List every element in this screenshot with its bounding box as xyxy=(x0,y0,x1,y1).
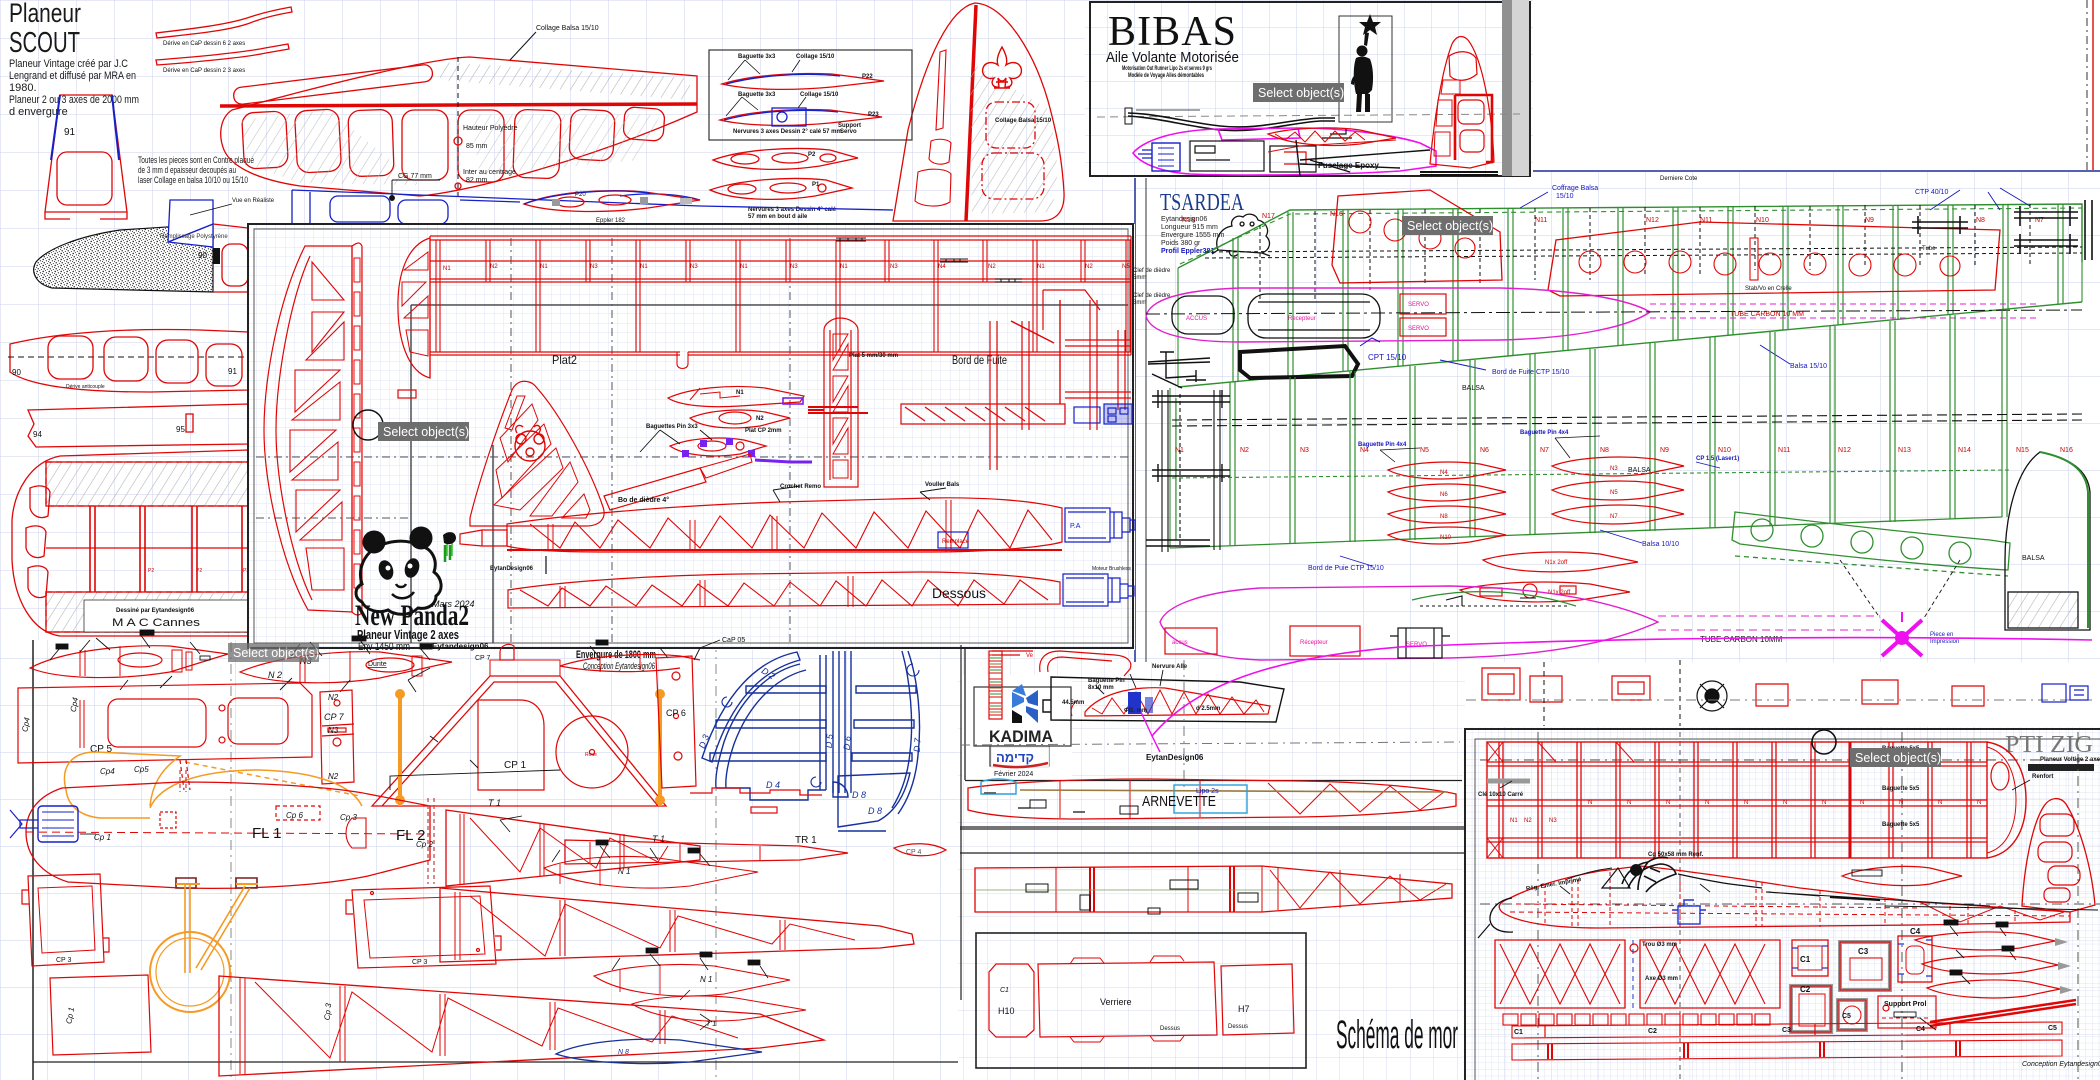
svg-text:C2: C2 xyxy=(1800,985,1811,994)
svg-text:5mm: 5mm xyxy=(1133,275,1146,281)
svg-text:Cp 3: Cp 3 xyxy=(323,1002,333,1020)
svg-text:1980.: 1980. xyxy=(9,82,37,94)
svg-text:N4: N4 xyxy=(938,264,946,270)
svg-text:N8: N8 xyxy=(1440,514,1448,520)
svg-text:P.A: P.A xyxy=(1070,523,1081,530)
svg-text:Roue: Roue xyxy=(585,752,597,758)
svg-text:Bord de Puie CTP 15/10: Bord de Puie CTP 15/10 xyxy=(1308,565,1384,572)
svg-text:N2: N2 xyxy=(1240,447,1249,454)
svg-text:C1: C1 xyxy=(1000,987,1009,994)
svg-text:N6: N6 xyxy=(1440,492,1448,498)
svg-text:N1: N1 xyxy=(443,266,451,272)
svg-text:Nervure Alle: Nervure Alle xyxy=(1152,664,1188,670)
svg-text:N1: N1 xyxy=(640,264,648,270)
svg-text:Bord de Fuite: Bord de Fuite xyxy=(952,353,1007,367)
svg-text:Bo de dièdre 4°: Bo de dièdre 4° xyxy=(618,496,669,504)
svg-text:C5: C5 xyxy=(2048,1025,2057,1032)
svg-text:Planeur: Planeur xyxy=(9,0,81,28)
svg-text:Plat 5 mm/30 mm: Plat 5 mm/30 mm xyxy=(849,353,898,359)
svg-text:Fuselage Epoxy: Fuselage Epoxy xyxy=(1318,161,1379,170)
svg-text:N: N xyxy=(1860,800,1864,806)
svg-text:Balsa 10/10: Balsa 10/10 xyxy=(1642,541,1679,548)
svg-text:CaP 05: CaP 05 xyxy=(722,637,745,644)
svg-text:Motorisation Out Runner Lipo: Motorisation Out Runner Lipo 2s et servo… xyxy=(1122,66,1212,72)
svg-text:accus: accus xyxy=(1172,640,1188,646)
svg-text:Mars 2024: Mars 2024 xyxy=(432,599,475,609)
svg-text:N2: N2 xyxy=(328,693,339,702)
svg-text:Tube: Tube xyxy=(1922,246,1936,252)
svg-text:Vue en Réaliste: Vue en Réaliste xyxy=(232,198,275,204)
svg-text:P1: P1 xyxy=(812,182,820,188)
svg-text:Hauteur Polyèdre: Hauteur Polyèdre xyxy=(463,125,518,132)
svg-text:Cp 6: Cp 6 xyxy=(286,811,303,820)
svg-text:laser Collage en balsa 10/10: laser Collage en balsa 10/10 ou 15/10 xyxy=(138,175,248,185)
svg-text:Collage Balsa 15/10: Collage Balsa 15/10 xyxy=(536,25,599,32)
svg-text:Vouller Bals: Vouller Bals xyxy=(925,482,960,488)
svg-text:N: N xyxy=(1627,800,1631,806)
svg-text:D 8: D 8 xyxy=(852,790,866,800)
svg-text:BALSA: BALSA xyxy=(1462,385,1485,392)
svg-text:de 3 mm d epaisseur decoupés a: de 3 mm d epaisseur decoupés au xyxy=(138,165,236,175)
svg-text:N1: N1 xyxy=(1037,264,1045,270)
svg-text:N: N xyxy=(1938,800,1942,806)
svg-text:Stab/Vo en Crelle: Stab/Vo en Crelle xyxy=(1745,286,1792,292)
svg-text:Dessus: Dessus xyxy=(1160,1026,1180,1032)
svg-text:N3: N3 xyxy=(1610,466,1618,472)
svg-text:Conception Eytandesign06: Conception Eytandesign06 xyxy=(2022,1061,2100,1068)
svg-text:90: 90 xyxy=(12,368,21,377)
svg-text:CG 77 mm: CG 77 mm xyxy=(398,173,432,180)
svg-text:Aile Volante Motorisée: Aile Volante Motorisée xyxy=(1106,49,1239,66)
svg-text:Eytandesign06: Eytandesign06 xyxy=(432,642,489,651)
svg-text:N1: N1 xyxy=(540,264,548,270)
svg-text:N2: N2 xyxy=(988,264,996,270)
svg-text:Verriere: Verriere xyxy=(1100,997,1132,1007)
svg-text:Envergure 1555 mm: Envergure 1555 mm xyxy=(1161,232,1225,239)
svg-text:Balsa 15/10: Balsa 15/10 xyxy=(1790,363,1827,370)
svg-text:D 5: D 5 xyxy=(824,733,835,749)
svg-text:Plat2: Plat2 xyxy=(552,353,577,367)
svg-text:N15: N15 xyxy=(2016,447,2029,454)
svg-text:Bord de Fuite CTP 15/10: Bord de Fuite CTP 15/10 xyxy=(1492,369,1569,376)
svg-text:N2: N2 xyxy=(328,772,339,781)
svg-text:SCOUT: SCOUT xyxy=(9,27,80,59)
svg-text:ΦB. mm: ΦB. mm xyxy=(1124,708,1147,714)
svg-text:82 mm: 82 mm xyxy=(466,177,488,184)
svg-text:C3: C3 xyxy=(1782,1027,1791,1034)
svg-text:Schéma de mor: Schéma de mor xyxy=(1336,1013,1458,1057)
svg-text:N2: N2 xyxy=(1524,818,1532,824)
svg-text:44.5mm: 44.5mm xyxy=(1062,700,1084,706)
svg-text:N3: N3 xyxy=(890,264,898,270)
svg-text:Crochet Remo: Crochet Remo xyxy=(780,484,821,490)
svg-text:C4: C4 xyxy=(1916,1026,1925,1033)
svg-text:P22: P22 xyxy=(862,74,873,80)
svg-text:3mm: 3mm xyxy=(1133,300,1146,306)
svg-text:N2: N2 xyxy=(490,264,498,270)
svg-text:D 4: D 4 xyxy=(766,780,780,790)
svg-text:Remplissage Polystyrène: Remplissage Polystyrène xyxy=(160,234,228,240)
svg-text:Récepteur: Récepteur xyxy=(1300,640,1328,646)
svg-text:D 8: D 8 xyxy=(868,806,882,816)
svg-text:N2: N2 xyxy=(756,416,764,422)
svg-text:N16: N16 xyxy=(2060,447,2073,454)
svg-text:EytanDesign06: EytanDesign06 xyxy=(490,566,534,572)
svg-text:P20: P20 xyxy=(575,192,586,198)
svg-text:Dessous: Dessous xyxy=(932,585,986,601)
svg-text:N: N xyxy=(1822,800,1826,806)
svg-text:Select object(s): Select object(s) xyxy=(233,646,319,660)
svg-text:Dérive en CaP dessin 2 3 axes: Dérive en CaP dessin 2 3 axes xyxy=(163,68,245,74)
svg-text:N: N xyxy=(1666,800,1670,806)
svg-text:N3: N3 xyxy=(690,264,698,270)
svg-text:Durite: Durite xyxy=(368,661,387,668)
svg-text:Inter au centrage: Inter au centrage xyxy=(463,169,516,176)
svg-text:N 8: N 8 xyxy=(618,1049,629,1056)
svg-text:N 1: N 1 xyxy=(700,975,712,984)
svg-text:Dessiné par Eytandesign06: Dessiné par Eytandesign06 xyxy=(116,608,195,614)
svg-text:Cp4: Cp4 xyxy=(100,767,115,776)
svg-text:N10: N10 xyxy=(1718,447,1731,454)
svg-text:PTI ZIG: PTI ZIG xyxy=(2005,732,2093,758)
svg-text:N: N xyxy=(1783,800,1787,806)
svg-text:N11: N11 xyxy=(1535,217,1547,224)
svg-text:Plat CP 2mm: Plat CP 2mm xyxy=(745,428,782,434)
svg-text:Select object(s): Select object(s) xyxy=(1855,751,1941,765)
svg-text:N4: N4 xyxy=(1360,447,1369,454)
svg-text:Trou Ø3 mm: Trou Ø3 mm xyxy=(1642,942,1677,948)
svg-text:N5: N5 xyxy=(1122,264,1130,270)
svg-text:Dérive en CaP dessin 6 2 axes: Dérive en CaP dessin 6 2 axes xyxy=(163,41,245,47)
svg-text:N2: N2 xyxy=(1085,264,1093,270)
svg-text:90: 90 xyxy=(198,251,207,260)
svg-text:N1x 2off: N1x 2off xyxy=(1545,560,1568,566)
svg-text:CP 6: CP 6 xyxy=(666,708,686,718)
svg-text:91: 91 xyxy=(228,367,237,376)
svg-text:BALSA: BALSA xyxy=(2022,555,2045,562)
svg-text:Planeur 2 ou 3 axes de 2000 mm: Planeur 2 ou 3 axes de 2000 mm xyxy=(9,94,139,106)
svg-text:N: N xyxy=(1899,800,1903,806)
svg-text:FL 2: FL 2 xyxy=(396,827,425,844)
svg-text:H10: H10 xyxy=(998,1006,1015,1016)
svg-text:N11: N11 xyxy=(1778,447,1790,454)
svg-text:Baguettes Pin 3x3: Baguettes Pin 3x3 xyxy=(646,424,698,430)
svg-text:C3: C3 xyxy=(1858,947,1869,956)
svg-text:D 7: D 7 xyxy=(912,737,923,753)
svg-text:P2: P2 xyxy=(148,568,154,574)
svg-text:CP 4: CP 4 xyxy=(906,849,922,856)
svg-text:N3: N3 xyxy=(328,726,339,735)
svg-text:N9: N9 xyxy=(1660,447,1669,454)
svg-text:85 mm: 85 mm xyxy=(466,143,488,150)
svg-text:CPT 15/10: CPT 15/10 xyxy=(1368,353,1407,362)
svg-text:N3: N3 xyxy=(590,264,598,270)
svg-text:C1: C1 xyxy=(1514,1029,1523,1036)
svg-text:Baguette 5x5: Baguette 5x5 xyxy=(1882,822,1920,828)
svg-text:N: N xyxy=(1977,800,1981,806)
svg-text:P2: P2 xyxy=(196,568,202,574)
svg-text:Axe Ø3 mm: Axe Ø3 mm xyxy=(1645,976,1678,982)
svg-text:Toutes les pieces sont en Cont: Toutes les pieces sont en Contre plaqué xyxy=(138,155,254,165)
svg-text:קדימה: קדימה xyxy=(996,750,1034,765)
svg-text:N: N xyxy=(1705,800,1709,806)
svg-text:P23: P23 xyxy=(868,112,879,118)
svg-text:N10: N10 xyxy=(1440,535,1452,541)
svg-text:Cp 3: Cp 3 xyxy=(340,813,357,822)
svg-text:C5: C5 xyxy=(1842,1013,1851,1020)
svg-text:N: N xyxy=(1588,800,1592,806)
svg-text:Clef de dièdre: Clef de dièdre xyxy=(1133,293,1171,299)
svg-text:Select object(s): Select object(s) xyxy=(383,425,469,439)
svg-text:D 6: D 6 xyxy=(842,736,853,751)
svg-text:N14: N14 xyxy=(1958,447,1971,454)
svg-text:Conception Eytandesign06: Conception Eytandesign06 xyxy=(583,661,655,671)
svg-text:CP 7: CP 7 xyxy=(324,712,345,722)
svg-text:Remplace: Remplace xyxy=(942,539,970,545)
svg-text:Cp5: Cp5 xyxy=(134,765,149,774)
svg-text:ACCUS: ACCUS xyxy=(1186,316,1207,322)
svg-text:C2: C2 xyxy=(1648,1028,1657,1035)
svg-text:Support Prol: Support Prol xyxy=(1884,1001,1926,1008)
svg-text:SERVO: SERVO xyxy=(1408,326,1429,332)
svg-text:Baguette 5x5: Baguette 5x5 xyxy=(1882,786,1920,792)
svg-text:Février 2024: Février 2024 xyxy=(994,771,1033,778)
svg-text:Baguette 3x3: Baguette 3x3 xyxy=(738,92,776,98)
svg-text:TUBE CARBON 10 MM: TUBE CARBON 10 MM xyxy=(1730,311,1804,318)
svg-text:57 mm en bout d aile: 57 mm en bout d aile xyxy=(748,214,808,220)
svg-text:N3: N3 xyxy=(1549,818,1557,824)
svg-text:Baguette Pin: Baguette Pin xyxy=(1088,678,1125,684)
svg-text:Baguette 3x3: Baguette 3x3 xyxy=(738,54,776,60)
svg-text:CP 1,5 (Laser1): CP 1,5 (Laser1) xyxy=(1696,456,1739,462)
svg-text:d 2.5mm: d 2.5mm xyxy=(1196,706,1220,712)
svg-text:SERVO: SERVO xyxy=(1408,302,1429,308)
svg-text:Nervures 3 axes Dessin 2° cal: Nervures 3 axes Dessin 2° calé 57 mm xyxy=(733,129,842,135)
svg-text:91: 91 xyxy=(64,127,76,138)
svg-text:Clé 10x10 Carré: Clé 10x10 Carré xyxy=(1478,792,1524,798)
svg-text:N1: N1 xyxy=(1510,818,1518,824)
svg-text:N 1: N 1 xyxy=(618,867,630,876)
svg-text:Collage 15/10: Collage 15/10 xyxy=(800,92,839,98)
svg-text:N1: N1 xyxy=(736,390,744,396)
svg-text:TR 1: TR 1 xyxy=(795,835,817,846)
svg-text:N12: N12 xyxy=(1646,217,1659,224)
svg-text:N16: N16 xyxy=(1330,211,1343,218)
svg-text:N17: N17 xyxy=(1262,213,1275,220)
svg-text:N1: N1 xyxy=(1175,447,1184,454)
svg-text:N5: N5 xyxy=(1610,490,1618,496)
svg-text:8x10 mm: 8x10 mm xyxy=(1088,685,1114,691)
svg-text:Baguette Pin 4x4: Baguette Pin 4x4 xyxy=(1358,442,1407,448)
svg-text:Dessus: Dessus xyxy=(1228,1024,1248,1030)
svg-text:Collage Balsa 15/10: Collage Balsa 15/10 xyxy=(995,118,1052,124)
svg-text:N1: N1 xyxy=(840,264,848,270)
svg-text:N6: N6 xyxy=(1480,447,1489,454)
svg-text:N 2: N 2 xyxy=(268,670,282,680)
svg-text:TUBE CARBON 10MM: TUBE CARBON 10MM xyxy=(1700,635,1783,644)
svg-text:T 1: T 1 xyxy=(488,798,501,808)
svg-text:N12: N12 xyxy=(1838,447,1851,454)
svg-text:N4: N4 xyxy=(1440,470,1448,476)
svg-text:Cg 50x58 mm Renf.: Cg 50x58 mm Renf. xyxy=(1648,852,1704,858)
svg-text:M A C Cannes: M A C Cannes xyxy=(112,617,201,629)
svg-text:Derniere Cote: Derniere Cote xyxy=(1660,176,1698,182)
svg-text:Cp 1: Cp 1 xyxy=(94,833,111,842)
svg-text:CP 1: CP 1 xyxy=(504,760,526,771)
svg-text:15/10: 15/10 xyxy=(1556,193,1574,200)
svg-text:N8: N8 xyxy=(1600,447,1609,454)
svg-text:Select object(s): Select object(s) xyxy=(1258,86,1344,100)
svg-text:P2: P2 xyxy=(808,152,816,158)
svg-text:Ve: Ve xyxy=(1026,653,1034,659)
svg-text:N5: N5 xyxy=(1420,447,1429,454)
svg-text:Select object(s): Select object(s) xyxy=(1407,219,1493,233)
svg-text:Renfort: Renfort xyxy=(2032,774,2053,780)
svg-text:N1: N1 xyxy=(740,264,748,270)
svg-text:N13: N13 xyxy=(1898,447,1911,454)
svg-text:FL 1: FL 1 xyxy=(252,825,281,842)
svg-text:Servo: Servo xyxy=(840,129,857,135)
svg-text:TSARDEA: TSARDEA xyxy=(1160,190,1245,216)
svg-text:CP 7: CP 7 xyxy=(475,655,491,662)
svg-text:C4: C4 xyxy=(1910,927,1921,936)
svg-text:Planeur Vintage 2 axes: Planeur Vintage 2 axes xyxy=(357,627,459,642)
svg-text:N7: N7 xyxy=(1610,514,1618,520)
svg-text:ARNEVETTE: ARNEVETTE xyxy=(1142,793,1216,810)
svg-text:KADIMA: KADIMA xyxy=(989,727,1053,746)
svg-text:N7: N7 xyxy=(1540,447,1549,454)
svg-text:Modèle de Voyage Ailes démont: Modèle de Voyage Ailes démontables xyxy=(1128,73,1204,79)
svg-text:Lengrand et diffusé par MRA en: Lengrand et diffusé par MRA en xyxy=(9,70,136,82)
svg-text:Moteur Brushless: Moteur Brushless xyxy=(1092,566,1131,572)
svg-text:N11: N11 xyxy=(1700,217,1712,224)
svg-text:CTP 40/10: CTP 40/10 xyxy=(1915,189,1948,196)
svg-text:Recepteur: Recepteur xyxy=(1288,316,1316,322)
svg-text:95: 95 xyxy=(176,425,185,434)
svg-text:H&B Kv: H&B Kv xyxy=(44,822,65,828)
svg-text:Longueur 915 mm: Longueur 915 mm xyxy=(1161,224,1218,231)
svg-text:N9: N9 xyxy=(1865,217,1874,224)
svg-text:N: N xyxy=(1744,800,1748,806)
svg-text:EytanDesign06: EytanDesign06 xyxy=(1146,753,1204,762)
svg-text:Impression: Impression xyxy=(1930,639,1959,645)
svg-text:Baguette Pin 4x4: Baguette Pin 4x4 xyxy=(1520,430,1569,436)
svg-text:Planeur Vintage créé par J.C: Planeur Vintage créé par J.C xyxy=(9,58,128,70)
svg-text:H7: H7 xyxy=(1238,1004,1250,1014)
svg-text:Coffrage Balsa: Coffrage Balsa xyxy=(1552,185,1598,192)
svg-text:94: 94 xyxy=(33,430,42,439)
svg-text:CP 3: CP 3 xyxy=(56,957,72,964)
svg-text:Clef de dièdre: Clef de dièdre xyxy=(1133,268,1171,274)
svg-text:C1: C1 xyxy=(1800,955,1811,964)
svg-text:T 1: T 1 xyxy=(706,1021,716,1028)
svg-text:Collage 15/10: Collage 15/10 xyxy=(796,54,835,60)
svg-text:N3: N3 xyxy=(790,264,798,270)
svg-text:N8: N8 xyxy=(1976,217,1985,224)
svg-text:N10: N10 xyxy=(1756,217,1769,224)
svg-text:Dérive anticouple: Dérive anticouple xyxy=(66,384,105,390)
svg-text:N18: N18 xyxy=(1182,217,1195,224)
svg-text:Poids 380 gr: Poids 380 gr xyxy=(1161,240,1201,247)
svg-text:CP 3: CP 3 xyxy=(412,959,428,966)
